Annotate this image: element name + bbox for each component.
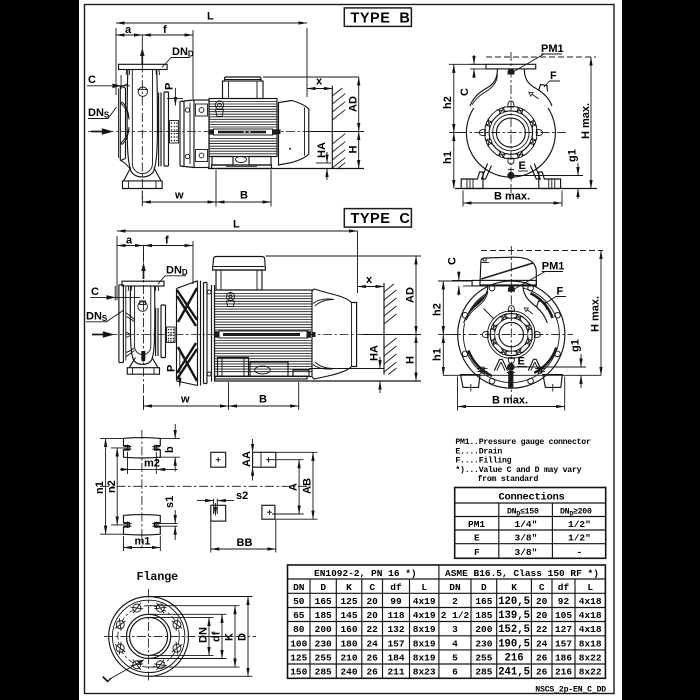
svg-text:8x22: 8x22 [579,667,602,678]
svg-text:132: 132 [387,624,404,635]
svg-text:K: K [224,633,236,641]
svg-text:AA: AA [241,451,253,467]
svg-text:h2: h2 [442,96,454,109]
svg-text:A: A [288,483,300,491]
svg-text:L: L [233,219,240,231]
svg-text:99: 99 [390,596,402,607]
svg-text:4x18: 4x18 [579,610,602,621]
svg-text:HA: HA [316,142,328,158]
svg-text:P: P [166,365,178,372]
svg-text:TYPE B: TYPE B [351,10,411,26]
svg-text:139,5: 139,5 [498,610,530,622]
svg-text:m2: m2 [144,458,160,470]
svg-text:240: 240 [340,667,357,678]
svg-text:160: 160 [340,624,357,635]
svg-text:157: 157 [387,638,404,649]
svg-text:20: 20 [366,596,378,607]
svg-text:E: E [518,356,525,368]
svg-text:EN1092-2, PN 16 *): EN1092-2, PN 16 *) [314,568,417,579]
svg-text:g1: g1 [567,149,579,162]
svg-text:80: 80 [293,624,305,635]
svg-text:F: F [550,70,557,82]
svg-text:C: C [88,74,96,86]
svg-text:B max.: B max. [494,191,530,203]
svg-text:D: D [320,582,326,593]
svg-text:w: w [174,190,184,202]
svg-text:8x19: 8x19 [413,638,436,649]
svg-text:4x18: 4x18 [579,624,602,635]
svg-text:210: 210 [340,652,357,663]
svg-text:26: 26 [366,667,378,678]
svg-text:125: 125 [340,596,357,607]
svg-text:211: 211 [387,667,404,678]
svg-text:4x19: 4x19 [413,610,436,621]
svg-text:AD: AD [348,96,360,112]
svg-text:x: x [366,274,373,286]
svg-text:105: 105 [555,610,572,621]
svg-text:125: 125 [290,652,307,663]
svg-text:H: H [348,146,360,154]
svg-text:8x18: 8x18 [579,638,602,649]
svg-text:f: f [163,24,167,36]
svg-text:216: 216 [555,667,572,678]
svg-text:C: C [539,582,545,593]
svg-text:22: 22 [366,624,378,635]
svg-text:df: df [558,582,570,593]
svg-text:B: B [240,190,248,202]
svg-text:PM1: PM1 [541,43,564,55]
svg-text:145: 145 [340,610,357,621]
svg-text:1/4": 1/4" [515,519,538,530]
svg-text:HA: HA [369,345,381,361]
svg-text:24: 24 [536,638,548,649]
svg-text:P: P [164,83,176,90]
svg-text:157: 157 [555,638,572,649]
svg-text:PM1: PM1 [468,519,485,530]
svg-text:a: a [125,24,132,36]
svg-text:127: 127 [555,624,572,635]
svg-text:184: 184 [387,652,404,663]
svg-text:K: K [346,582,352,593]
svg-text:g1: g1 [570,339,582,352]
svg-text:h2: h2 [432,303,444,316]
svg-text:C: C [369,582,375,593]
svg-text:8x19: 8x19 [413,624,436,635]
svg-text:165: 165 [315,596,332,607]
svg-text:DN: DN [198,627,210,643]
svg-text:B max.: B max. [492,395,528,407]
svg-text:n1: n1 [94,481,106,494]
svg-text:241,5: 241,5 [498,667,530,679]
svg-text:DND≤150: DND≤150 [507,507,539,517]
svg-text:h1: h1 [432,348,444,361]
svg-text:-: - [577,547,583,558]
svg-text:8x22: 8x22 [579,652,602,663]
svg-text:100: 100 [290,638,307,649]
svg-text:C: C [459,88,471,96]
svg-text:185: 185 [315,610,332,621]
svg-text:4x19: 4x19 [413,596,436,607]
svg-text:152,5: 152,5 [498,624,530,636]
svg-text:20: 20 [536,610,548,621]
svg-text:200: 200 [475,624,492,635]
svg-text:F: F [474,547,480,558]
svg-text:200: 200 [315,624,332,635]
svg-text:*)...Value C and D may vary: *)...Value C and D may vary [455,465,581,475]
svg-text:f: f [165,235,169,247]
svg-text:285: 285 [315,667,332,678]
svg-text:65: 65 [293,610,305,621]
svg-text:DND≥200: DND≥200 [560,507,592,517]
svg-text:DN: DN [293,582,305,593]
svg-text:1/2": 1/2" [568,519,591,530]
svg-text:E: E [519,160,526,172]
svg-text:Connections: Connections [499,492,565,504]
svg-text:24: 24 [366,638,378,649]
svg-text:K: K [511,582,517,593]
svg-text:df: df [390,582,402,593]
svg-text:NSCS_2p-EN_C_DD: NSCS_2p-EN_C_DD [535,686,606,695]
svg-text:ASME B16.5, Class 150 RF *): ASME B16.5, Class 150 RF *) [445,568,599,579]
svg-text:3/8": 3/8" [515,533,538,544]
svg-text:26: 26 [536,667,548,678]
svg-text:285: 285 [475,667,492,678]
svg-text:B: B [259,394,267,406]
svg-text:1/2": 1/2" [568,533,591,544]
svg-text:Flange: Flange [137,570,179,584]
svg-text:180: 180 [340,638,357,649]
svg-text:255: 255 [315,652,332,663]
svg-text:3: 3 [452,624,458,635]
svg-text:AB: AB [302,478,314,494]
svg-text:92: 92 [558,596,570,607]
svg-text:230: 230 [315,638,332,649]
svg-text:m1: m1 [135,536,151,548]
svg-text:118: 118 [387,610,404,621]
svg-text:4x18: 4x18 [579,596,602,607]
svg-text:PM1: PM1 [542,261,565,273]
svg-text:230: 230 [475,638,492,649]
svg-text:a: a [126,235,133,247]
svg-text:s2: s2 [236,490,248,502]
svg-text:120,5: 120,5 [498,596,530,608]
svg-text:F....Filling: F....Filling [455,456,511,466]
svg-text:BB: BB [237,537,253,549]
svg-text:h1: h1 [442,151,454,164]
svg-text:AD: AD [405,287,417,303]
svg-text:df: df [211,631,223,642]
svg-text:165: 165 [475,596,492,607]
svg-text:b: b [164,446,176,453]
svg-text:185: 185 [475,610,492,621]
svg-text:150: 150 [290,667,307,678]
svg-text:3/8": 3/8" [515,547,538,558]
svg-text:E: E [474,533,480,544]
svg-text:H max.: H max. [590,296,602,332]
svg-text:50: 50 [293,596,305,607]
svg-text:TYPE C: TYPE C [351,211,411,227]
svg-text:5: 5 [452,652,458,663]
svg-text:n2: n2 [106,480,118,493]
svg-text:6: 6 [452,667,458,678]
svg-text:22: 22 [536,624,548,635]
svg-text:w: w [180,394,190,406]
svg-text:2: 2 [452,596,458,607]
svg-text:from standard: from standard [478,474,539,484]
svg-text:F: F [557,286,564,298]
svg-text:H: H [405,356,417,364]
svg-text:20: 20 [536,596,548,607]
svg-text:4: 4 [452,638,458,649]
svg-text:190,5: 190,5 [498,638,530,650]
svg-text:C: C [91,286,99,298]
svg-text:26: 26 [366,652,378,663]
svg-text:20: 20 [366,610,378,621]
svg-text:26: 26 [536,652,548,663]
svg-text:C: C [447,257,459,265]
svg-text:D: D [481,582,487,593]
svg-text:8x19: 8x19 [413,652,436,663]
svg-text:PM1..Pressure gauge connector: PM1..Pressure gauge connector [455,438,591,447]
svg-text:DN: DN [449,582,461,593]
svg-text:8x23: 8x23 [413,667,436,678]
svg-text:s1: s1 [164,496,176,508]
svg-text:216: 216 [505,652,524,664]
svg-text:L: L [207,11,214,23]
svg-text:E....Drain: E....Drain [455,446,502,456]
svg-text:L: L [587,582,593,593]
svg-text:2 1/2: 2 1/2 [441,610,470,621]
svg-text:H max.: H max. [580,103,592,139]
svg-text:D: D [237,633,249,641]
svg-text:186: 186 [555,652,572,663]
svg-text:255: 255 [475,652,492,663]
svg-text:L: L [421,582,427,593]
